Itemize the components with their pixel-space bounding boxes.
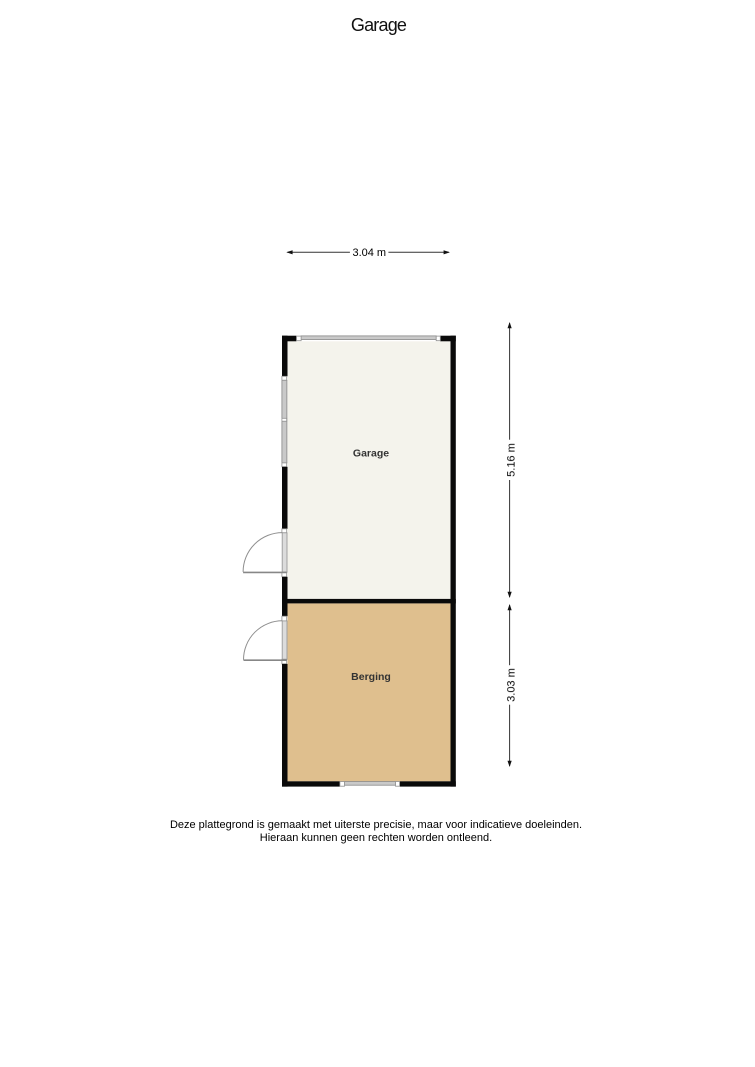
svg-text:3.04 m: 3.04 m <box>352 247 386 259</box>
svg-text:5.16 m: 5.16 m <box>506 443 518 477</box>
svg-text:3.03 m: 3.03 m <box>506 668 518 702</box>
svg-text:Garage: Garage <box>353 448 389 460</box>
svg-text:Berging: Berging <box>351 671 391 683</box>
